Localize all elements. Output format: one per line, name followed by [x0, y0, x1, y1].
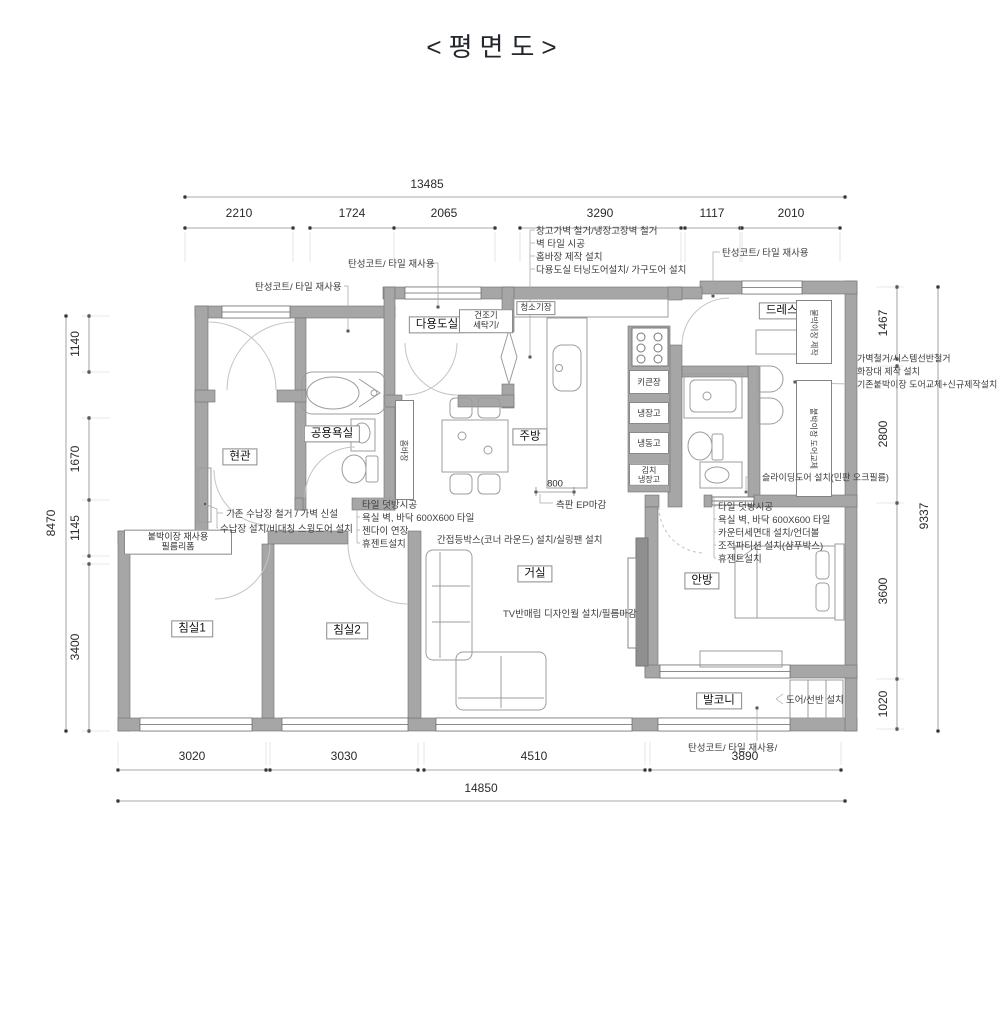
dim-right-seg-3: 1020 — [877, 691, 891, 718]
dim-right-seg-1: 2800 — [877, 421, 891, 448]
dressroom-closet-make: 붙박이장 제작 — [796, 300, 832, 364]
room-label-balcony: 발코니 — [696, 692, 742, 709]
page-title: <평면도> — [426, 33, 563, 63]
room-label-living: 거실 — [517, 565, 552, 582]
ann-common-bath-1: 욕실 벽, 바닥 600X600 타일 — [362, 510, 474, 524]
floorplan-drawing — [0, 0, 1000, 1027]
ann-ceiling: 간접등박스(코너 라운드) 설치/실링팬 설치 — [437, 532, 602, 546]
ann-top-center-2: 홈바장 제작 설치 — [536, 249, 602, 263]
tall-cabinet: 키큰장 — [629, 370, 669, 394]
dim-right-total: 9337 — [918, 503, 932, 530]
room-label-master: 안방 — [684, 572, 719, 589]
ann-entrance-1: 수납장 설치/비대칭 스윙도어 설치 — [220, 521, 353, 535]
dim-left-seg-0: 1140 — [69, 331, 83, 357]
ann-top-center-1: 벽 타일 시공 — [536, 236, 585, 250]
dim-right-seg-2: 3600 — [877, 578, 891, 605]
home-bar-cabinet: 홈바장 — [395, 400, 414, 500]
room-label-bedroom2: 침실2 — [326, 622, 368, 639]
ann-master-bath-0: 타일 덧방시공 — [718, 499, 773, 513]
dim-top-total: 13485 — [410, 178, 443, 192]
dim-left-total: 8470 — [45, 510, 59, 537]
ann-sliding-door: 슬라이딩도어 설치(민판 오크필름) — [762, 471, 889, 484]
room-label-common-bath: 공용욕실 — [304, 425, 360, 442]
ann-master-bath-4: 휴젠트설치 — [718, 551, 762, 565]
floorplan-page: <평면도> 13485 2210 1724 2065 3290 1117 201… — [0, 0, 1000, 1027]
ann-balcony-door: 도어/선반 설치 — [786, 692, 844, 706]
vacuum-closet: 청소기장 — [516, 301, 555, 315]
dim-bottom-total: 14850 — [464, 782, 497, 796]
ann-common-bath-0: 타일 덧방시공 — [362, 497, 417, 511]
dryer-washer-closet: 건조기 세탁기/ — [459, 309, 513, 333]
ann-right-1: 화장대 제작 설치 — [857, 365, 920, 378]
ann-right-2: 기존붙박이장 도어교체+신규제작설치 — [857, 378, 997, 391]
ann-ep-finish: 측판 EP마감 — [556, 497, 606, 511]
ann-balcony-coat: 탄성코트/ 타일 재사용/ — [688, 740, 777, 754]
dim-top-seg-3: 3290 — [587, 207, 614, 221]
ann-common-bath-3: 휴젠트설치 — [362, 536, 406, 550]
dim-bottom-seg-1: 3030 — [331, 750, 358, 764]
ann-master-bath-3: 조적파티션 설치(샴푸박스) — [718, 538, 823, 552]
ann-elastic-coat-mid: 탄성코트/ 타일 재사용 — [348, 256, 435, 270]
ann-master-bath-2: 카운터세면대 설치/언더볼 — [718, 525, 819, 539]
dim-left-seg-1: 1670 — [69, 446, 83, 473]
ann-common-bath-2: 젠다이 연장 — [362, 523, 408, 537]
dim-top-seg-5: 2010 — [778, 207, 805, 221]
ann-tv-wall: TV반매립 디자인월 설치/필름마감 — [503, 606, 637, 620]
ann-top-center-3: 다용도실 터닝도어설치/ 가구도어 설치 — [536, 262, 686, 276]
fridge: 냉장고 — [629, 402, 669, 424]
dim-bottom-seg-2: 4510 — [521, 750, 548, 764]
room-label-utility: 다용도실 — [409, 316, 465, 333]
dim-right-seg-0: 1467 — [877, 310, 891, 337]
ann-top-center-0: 창고가벽 철거/냉장고장벽 철거 — [536, 223, 658, 237]
ann-right-0: 가벽철거/시스템선반철거 — [857, 352, 951, 365]
dim-island: 800 — [547, 480, 563, 491]
dim-top-seg-2: 2065 — [431, 207, 458, 221]
ann-master-bath-1: 욕실 벽, 바닥 600X600 타일 — [718, 512, 830, 526]
dim-top-seg-0: 2210 — [226, 207, 253, 221]
room-label-kitchen: 주방 — [512, 428, 547, 445]
wardrobe-reuse-box: 붙박이장 재사용 필름리폼 — [124, 530, 232, 555]
dim-bottom-seg-0: 3020 — [179, 750, 206, 764]
room-label-entrance: 현관 — [222, 448, 257, 465]
ann-elastic-coat-left: 탄성코트/ 타일 재사용 — [255, 279, 342, 293]
dim-left-seg-3: 3400 — [69, 634, 83, 661]
dim-top-seg-1: 1724 — [339, 207, 366, 221]
ann-entrance-0: 기존 수납장 철거 / 가벽 신설 — [226, 506, 338, 520]
dim-top-seg-4: 1117 — [700, 207, 725, 221]
kimchi-fridge: 김치 냉장고 — [629, 464, 669, 486]
freezer: 냉동고 — [629, 432, 669, 454]
room-label-bedroom1: 침실1 — [171, 620, 213, 637]
ann-elastic-coat-right: 탄성코트/ 타일 재사용 — [722, 245, 809, 259]
dim-left-seg-2: 1145 — [69, 515, 83, 541]
